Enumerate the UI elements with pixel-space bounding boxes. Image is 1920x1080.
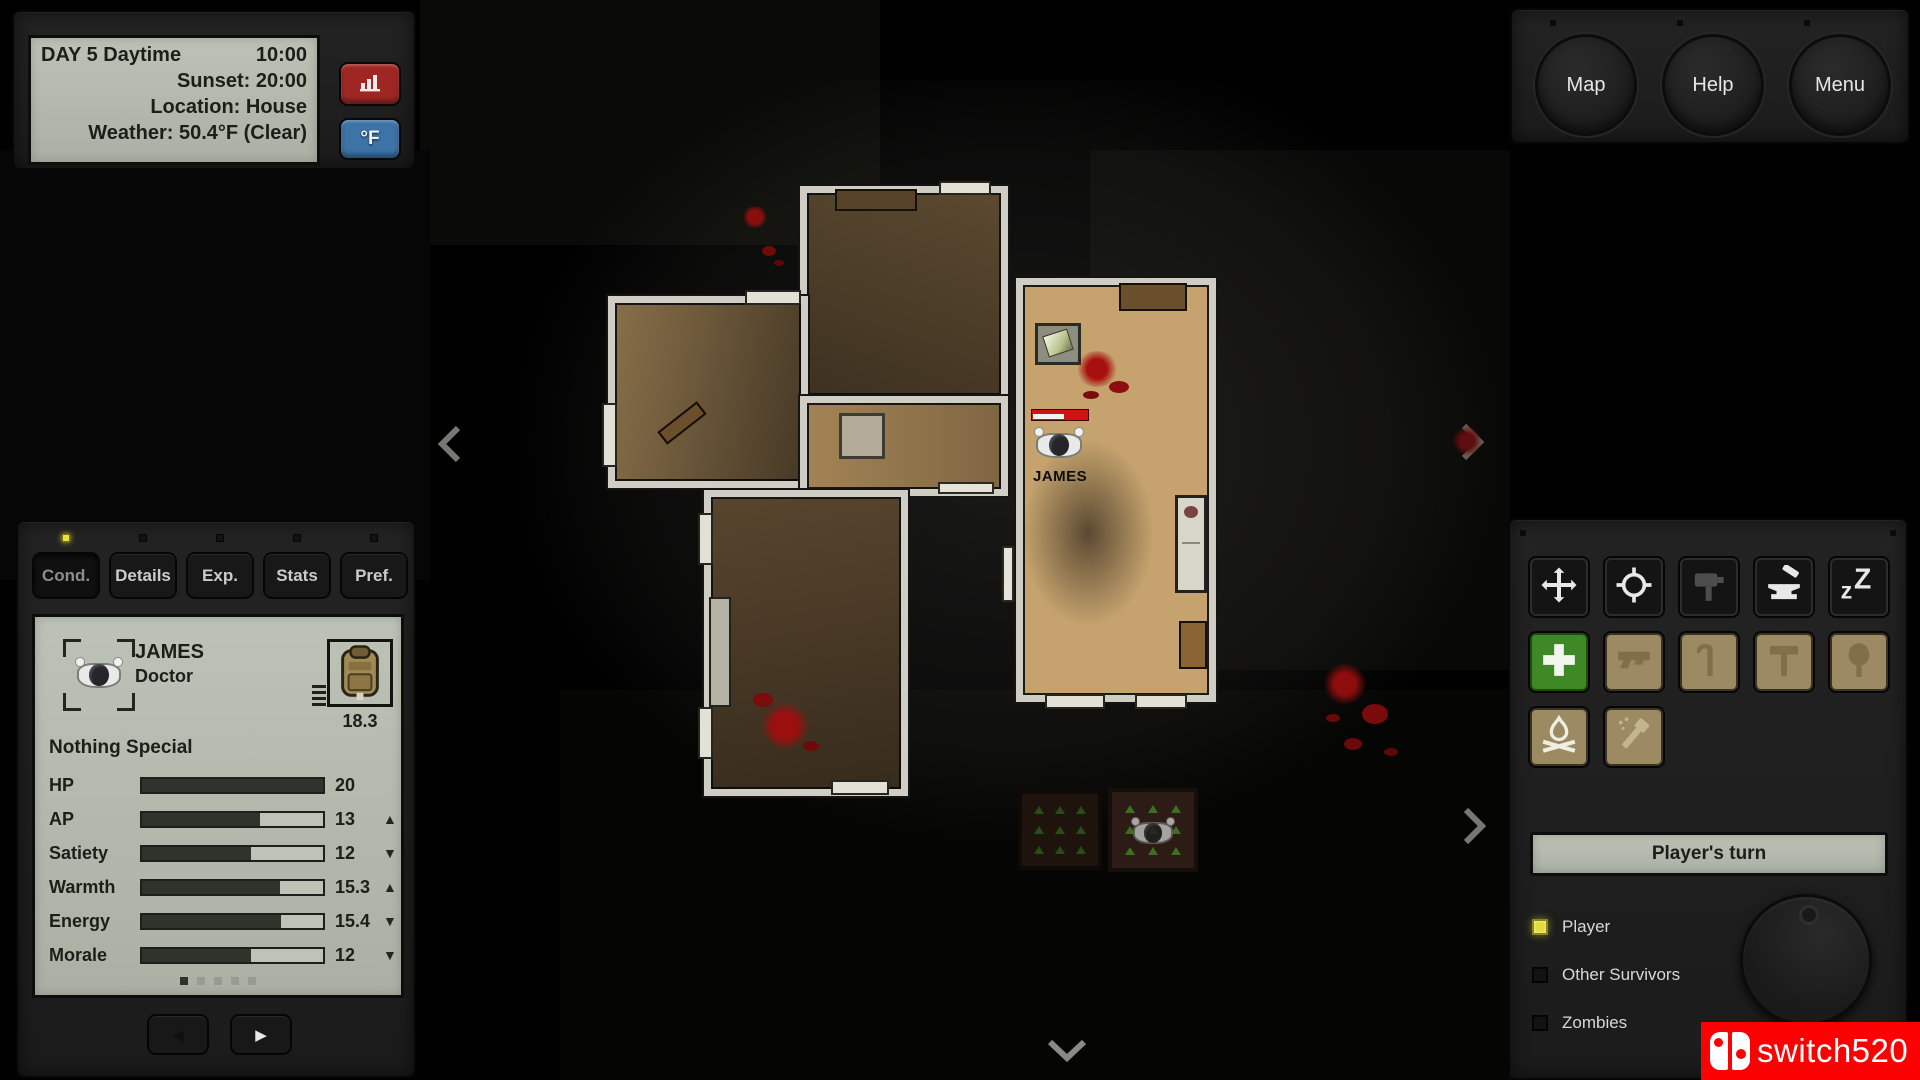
menu-panel: MapHelpMenu xyxy=(1510,8,1910,144)
sleep-button[interactable]: zZ xyxy=(1830,558,1888,616)
blood-splatter xyxy=(1075,351,1119,387)
stat-value: 13 xyxy=(335,809,355,830)
heal-button[interactable] xyxy=(1530,633,1588,691)
stat-row-energy: Energy15.4▼ xyxy=(35,911,401,935)
svg-text:z: z xyxy=(1841,577,1853,603)
character-role: Doctor xyxy=(135,666,193,687)
scroll-down-arrow[interactable] xyxy=(1044,1034,1090,1066)
stat-row-morale: Morale12▼ xyxy=(35,945,401,969)
stat-label: AP xyxy=(49,809,74,830)
carry-weight: 18.3 xyxy=(327,711,393,732)
tab-details[interactable]: Details xyxy=(109,552,177,599)
stat-row-satiety: Satiety12▼ xyxy=(35,843,401,867)
stat-label: HP xyxy=(49,775,74,796)
stat-label: Satiety xyxy=(49,843,108,864)
stat-bar-fill xyxy=(142,881,280,894)
menu-button-map[interactable]: Map xyxy=(1535,34,1637,136)
menu-button-menu[interactable]: Menu xyxy=(1789,34,1891,136)
corpse-loot[interactable] xyxy=(1035,323,1081,365)
dresser[interactable] xyxy=(1119,283,1187,311)
player-health-bar xyxy=(1031,409,1089,421)
counter[interactable] xyxy=(709,597,731,707)
target-button[interactable] xyxy=(1605,558,1663,616)
signpost-button[interactable] xyxy=(1680,558,1738,616)
pistol-icon xyxy=(1614,640,1654,685)
stat-value: 15.4 xyxy=(335,911,370,932)
stats-chart-button[interactable] xyxy=(339,62,401,106)
stat-label: Warmth xyxy=(49,877,115,898)
info-lcd-screen: DAY 5 Daytime 10:00 Sunset: 20:00 Locati… xyxy=(28,35,320,165)
tab-led-cond xyxy=(62,534,70,542)
day-label: DAY 5 Daytime xyxy=(41,42,181,68)
window xyxy=(1045,694,1105,709)
zoom-dial[interactable] xyxy=(1740,894,1872,1026)
scroll-left-arrow[interactable] xyxy=(434,422,466,466)
legend-row-player: Player xyxy=(1532,916,1752,940)
stat-trend-down-icon: ▼ xyxy=(383,845,397,861)
svg-text:Z: Z xyxy=(1854,565,1871,595)
character-lcd-screen: JAMES Doctor 18.3 Nothing Special HP20AP… xyxy=(32,614,404,998)
window xyxy=(698,707,713,759)
side-table[interactable] xyxy=(1179,621,1207,669)
shovel-button[interactable] xyxy=(1830,633,1888,691)
stat-bar xyxy=(140,947,325,964)
page-dot-4[interactable] xyxy=(248,977,256,985)
tab-stats[interactable]: Stats xyxy=(263,552,331,599)
stat-value: 20 xyxy=(335,775,355,796)
weather-label: Weather: 50.4°F (Clear) xyxy=(41,120,307,146)
room-middle[interactable] xyxy=(800,396,1008,496)
next-survivor-button[interactable]: ▶ xyxy=(230,1014,292,1055)
page-dot-0[interactable] xyxy=(180,977,188,985)
stat-value: 15.3 xyxy=(335,877,370,898)
tab-led-pref xyxy=(370,534,378,542)
window xyxy=(745,290,801,305)
stat-label: Morale xyxy=(49,945,107,966)
tab-led-stats xyxy=(293,534,301,542)
page-dot-3[interactable] xyxy=(231,977,239,985)
character-panel: Cond.DetailsExp.StatsPref. JAMES Doctor xyxy=(16,520,416,1078)
crowbar-icon xyxy=(1689,640,1729,685)
character-name: JAMES xyxy=(135,641,204,664)
stat-value: 12 xyxy=(335,945,355,966)
stat-bar xyxy=(140,879,325,896)
signpost-icon xyxy=(1689,565,1729,610)
sunset-label: Sunset: 20:00 xyxy=(41,68,307,94)
stat-bar xyxy=(140,913,325,930)
player-sprite[interactable] xyxy=(1033,423,1085,467)
legend-label: Player xyxy=(1562,917,1610,937)
room-left[interactable] xyxy=(608,296,808,488)
heal-icon xyxy=(1539,640,1579,685)
backpack-button[interactable] xyxy=(327,639,393,707)
page-dot-1[interactable] xyxy=(197,977,205,985)
stat-trend-up-icon: ▲ xyxy=(383,811,397,827)
temperature-unit-button[interactable]: °F xyxy=(339,118,401,160)
blood-splatter xyxy=(759,703,811,749)
target-icon xyxy=(1614,565,1654,610)
portrait-frame xyxy=(63,639,135,711)
character-trait: Nothing Special xyxy=(49,737,193,759)
tab-cond[interactable]: Cond. xyxy=(32,552,100,599)
player-name-label: JAMES xyxy=(1033,468,1087,485)
window xyxy=(939,181,991,195)
prev-icon: ◀ xyxy=(172,1026,184,1044)
tab-exp[interactable]: Exp. xyxy=(186,552,254,599)
legend-label: Zombies xyxy=(1562,1013,1627,1033)
blood-splatter xyxy=(1322,664,1368,704)
stat-bar-fill xyxy=(142,847,251,860)
room-bottom[interactable] xyxy=(704,490,908,796)
action-panel: zZ Player's turn PlayerOther SurvivorsZo… xyxy=(1508,518,1908,1080)
dresser[interactable] xyxy=(835,189,917,211)
flashlight-button[interactable] xyxy=(1605,708,1663,766)
flashlight-icon xyxy=(1614,715,1654,760)
room-top[interactable] xyxy=(800,186,1008,402)
campfire-icon xyxy=(1539,715,1579,760)
crowbar-button[interactable] xyxy=(1680,633,1738,691)
temp-unit-label: °F xyxy=(360,128,379,150)
scroll-right-arrow[interactable] xyxy=(1456,420,1488,464)
craft-icon xyxy=(1764,565,1804,610)
legend-row-other-survivors: Other Survivors xyxy=(1532,964,1752,988)
watermark-text: switch520 xyxy=(1757,1032,1908,1070)
legend-led xyxy=(1532,967,1548,983)
next-icon: ▶ xyxy=(255,1026,267,1044)
open-door[interactable] xyxy=(1002,546,1014,602)
stat-row-ap: AP13▲ xyxy=(35,809,401,833)
dial-marker xyxy=(1799,905,1819,925)
stat-bar xyxy=(140,811,325,828)
crate[interactable] xyxy=(839,413,885,459)
menu-button-help[interactable]: Help xyxy=(1662,34,1764,136)
stat-value: 12 xyxy=(335,843,355,864)
stat-bar-fill xyxy=(142,949,251,962)
page-dots xyxy=(35,977,401,985)
move-icon xyxy=(1539,565,1579,610)
stat-bar-fill xyxy=(142,813,260,826)
stat-trend-down-icon: ▼ xyxy=(383,913,397,929)
garden-plot[interactable] xyxy=(1108,788,1198,872)
legend-label: Other Survivors xyxy=(1562,965,1680,985)
stat-trend-up-icon: ▲ xyxy=(383,879,397,895)
stat-bar xyxy=(140,845,325,862)
location-label: Location: House xyxy=(41,94,307,120)
craft-button[interactable] xyxy=(1755,558,1813,616)
stat-row-hp: HP20 xyxy=(35,775,401,799)
page-dot-2[interactable] xyxy=(214,977,222,985)
stat-label: Energy xyxy=(49,911,110,932)
room-main[interactable]: JAMES xyxy=(1016,278,1216,702)
backpack-icon xyxy=(330,691,390,708)
stat-bar-fill xyxy=(142,779,323,792)
legend-led xyxy=(1532,919,1548,935)
stat-bar-fill xyxy=(142,915,281,928)
portrait-sprite xyxy=(74,653,124,697)
stat-row-warmth: Warmth15.3▲ xyxy=(35,877,401,901)
window xyxy=(831,780,889,795)
garden-plot[interactable] xyxy=(1018,790,1102,870)
tab-pref[interactable]: Pref. xyxy=(340,552,408,599)
watermark: switch520 xyxy=(1701,1022,1920,1080)
prev-survivor-button[interactable]: ◀ xyxy=(147,1014,209,1055)
bar-chart-icon xyxy=(357,70,383,99)
window xyxy=(602,403,617,467)
hammer-button[interactable] xyxy=(1755,633,1813,691)
open-door[interactable] xyxy=(938,482,994,494)
info-panel: DAY 5 Daytime 10:00 Sunset: 20:00 Locati… xyxy=(12,10,416,170)
window xyxy=(698,513,713,565)
list-icon xyxy=(312,685,326,709)
tab-led-exp xyxy=(216,534,224,542)
legend-led xyxy=(1532,1015,1548,1031)
window xyxy=(1135,694,1187,709)
scroll-right-arrow-2[interactable] xyxy=(1458,804,1490,848)
game-screen: JAMES xyxy=(0,0,1920,1080)
stat-bar xyxy=(140,777,325,794)
sleep-icon: zZ xyxy=(1839,565,1879,610)
hammer-icon xyxy=(1764,640,1804,685)
turn-indicator: Player's turn xyxy=(1530,832,1888,876)
move-button[interactable] xyxy=(1530,558,1588,616)
campfire-button[interactable] xyxy=(1530,708,1588,766)
time-label: 10:00 xyxy=(256,42,307,68)
tab-led-details xyxy=(139,534,147,542)
bench[interactable] xyxy=(657,401,706,444)
stat-trend-down-icon: ▼ xyxy=(383,947,397,963)
shovel-icon xyxy=(1839,640,1879,685)
survivor-sprite[interactable] xyxy=(1130,814,1176,852)
switch-logo-icon xyxy=(1709,1029,1753,1073)
terrain-patch xyxy=(0,150,430,580)
couch[interactable] xyxy=(1175,495,1207,593)
pistol-button[interactable] xyxy=(1605,633,1663,691)
blood-splatter xyxy=(742,206,768,228)
